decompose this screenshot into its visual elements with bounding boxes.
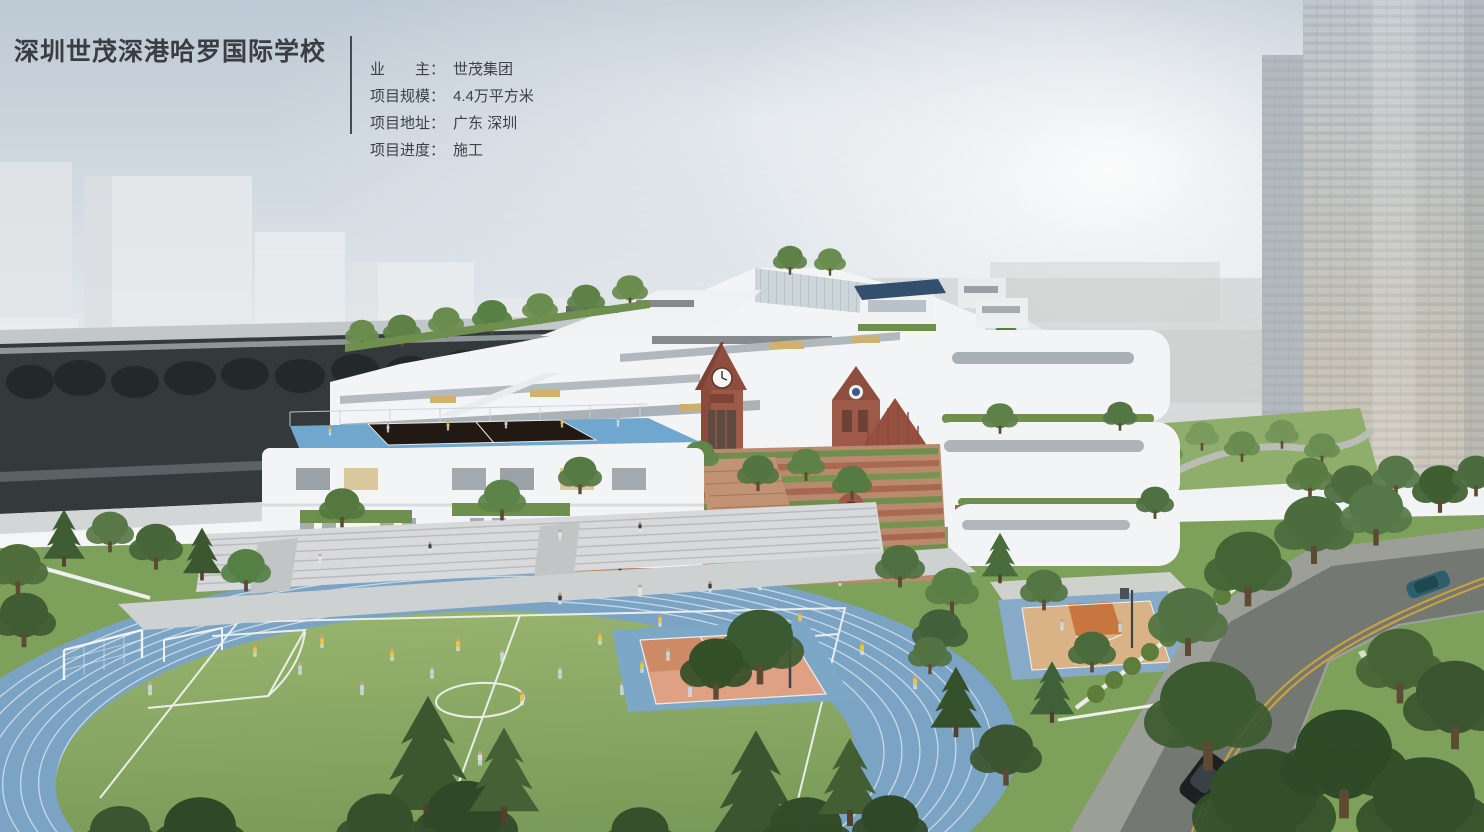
info-row-progress: 项目进度： 施工 xyxy=(370,137,534,164)
info-label: 业 主： xyxy=(370,56,445,83)
info-value: 4.4万平方米 xyxy=(453,83,534,110)
project-info: 业 主： 世茂集团 项目规模： 4.4万平方米 项目地址： 广东 深圳 项目进度… xyxy=(370,54,534,164)
info-label: 项目规模： xyxy=(370,83,445,110)
info-value: 世茂集团 xyxy=(453,56,513,83)
info-row-owner: 业 主： 世茂集团 xyxy=(370,56,534,83)
architectural-rendering-page: 深圳世茂深港哈罗国际学校 业 主： 世茂集团 项目规模： 4.4万平方米 项目地… xyxy=(0,0,1484,832)
info-row-scale: 项目规模： 4.4万平方米 xyxy=(370,83,534,110)
info-value: 施工 xyxy=(453,137,483,164)
header-divider xyxy=(350,36,352,134)
info-row-location: 项目地址： 广东 深圳 xyxy=(370,110,534,137)
residential-tower xyxy=(1262,0,1484,480)
info-value: 广东 深圳 xyxy=(453,110,517,137)
rooftop-pavilion xyxy=(854,279,946,331)
project-title: 深圳世茂深港哈罗国际学校 xyxy=(14,38,326,66)
project-header: 深圳世茂深港哈罗国际学校 业 主： 世茂集团 项目规模： 4.4万平方米 项目地… xyxy=(14,38,534,180)
info-label: 项目进度： xyxy=(370,137,445,164)
info-label: 项目地址： xyxy=(370,110,445,137)
